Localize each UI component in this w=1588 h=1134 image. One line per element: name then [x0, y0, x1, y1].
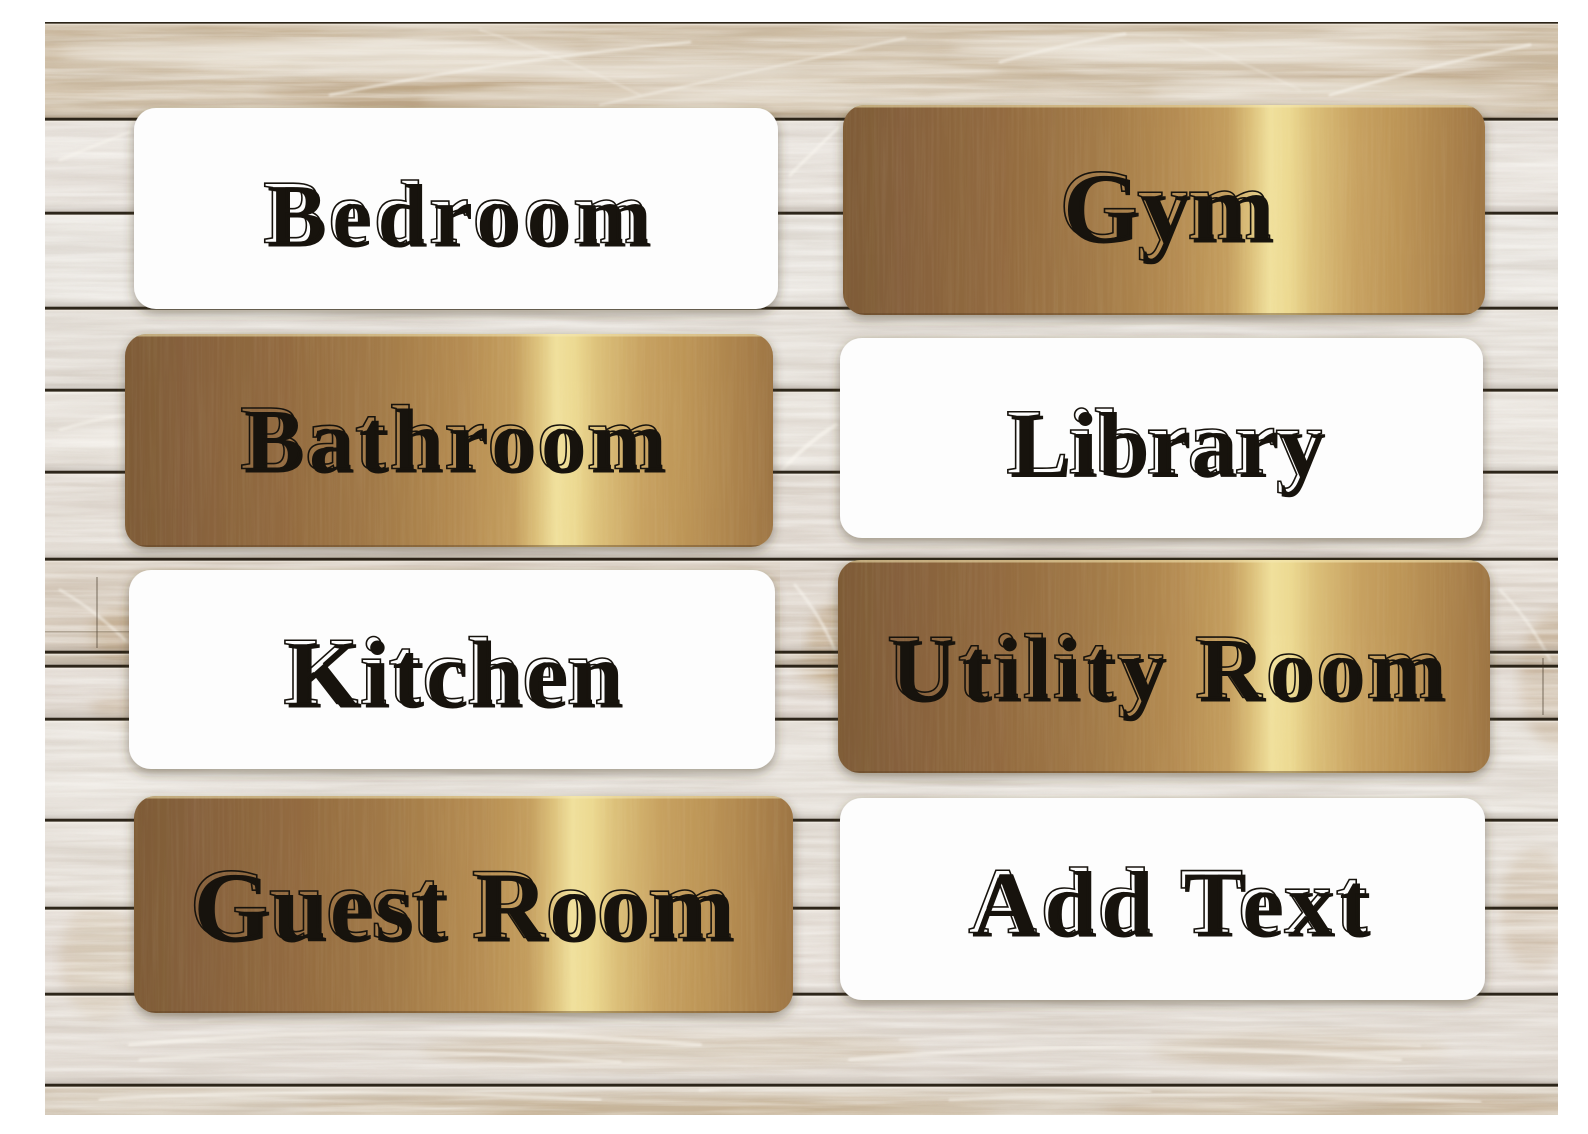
svg-text:Kitchen: Kitchen: [283, 618, 620, 725]
svg-text:Add Text: Add Text: [968, 849, 1367, 954]
svg-text:Guest Room: Guest Room: [190, 848, 732, 960]
svg-text:Gym: Gym: [1059, 149, 1271, 261]
svg-text:Library: Library: [1006, 391, 1322, 494]
svg-text:Bedroom: Bedroom: [263, 163, 648, 263]
